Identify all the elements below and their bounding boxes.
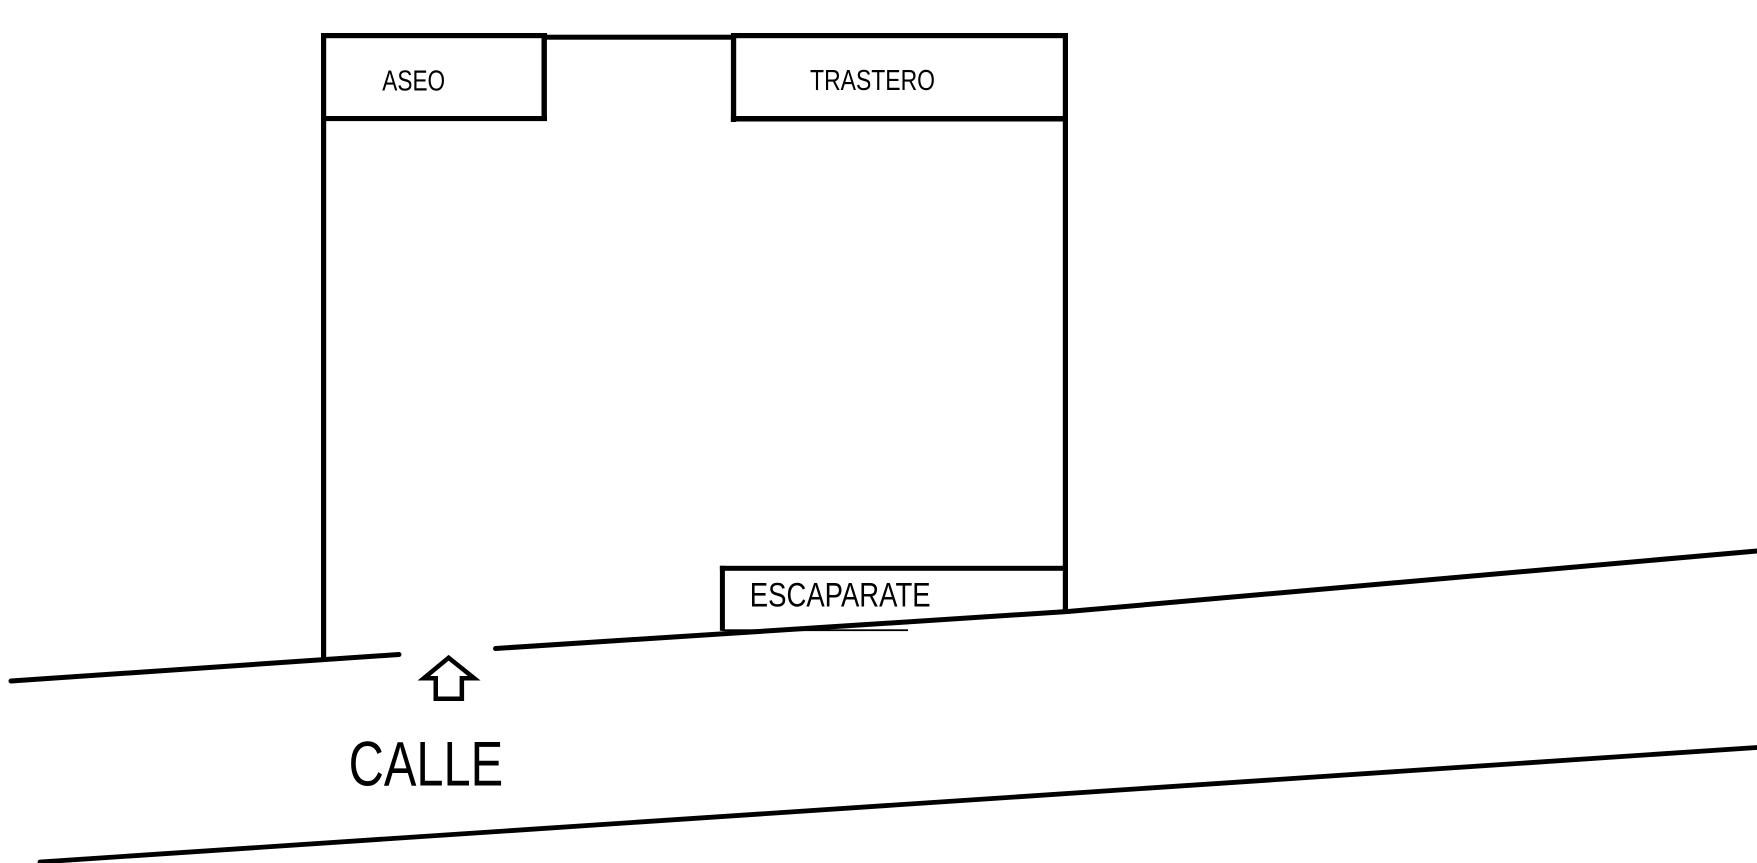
svg-text:ESCAPARATE: ESCAPARATE	[750, 576, 931, 615]
svg-text:TRASTERO: TRASTERO	[810, 63, 935, 96]
svg-text:CALLE: CALLE	[349, 728, 503, 798]
svg-text:ASEO: ASEO	[382, 64, 445, 97]
